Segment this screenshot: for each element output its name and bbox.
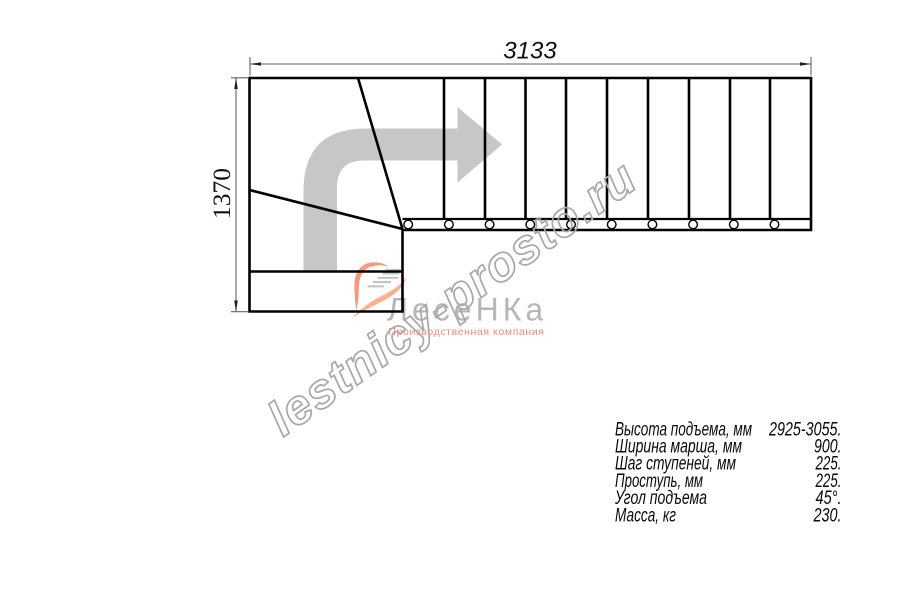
svg-text:1370: 1370 — [207, 168, 236, 219]
svg-text:Масса, кг: Масса, кг — [615, 504, 676, 526]
svg-text:230.: 230. — [813, 504, 842, 526]
svg-text:3133: 3133 — [503, 38, 557, 65]
